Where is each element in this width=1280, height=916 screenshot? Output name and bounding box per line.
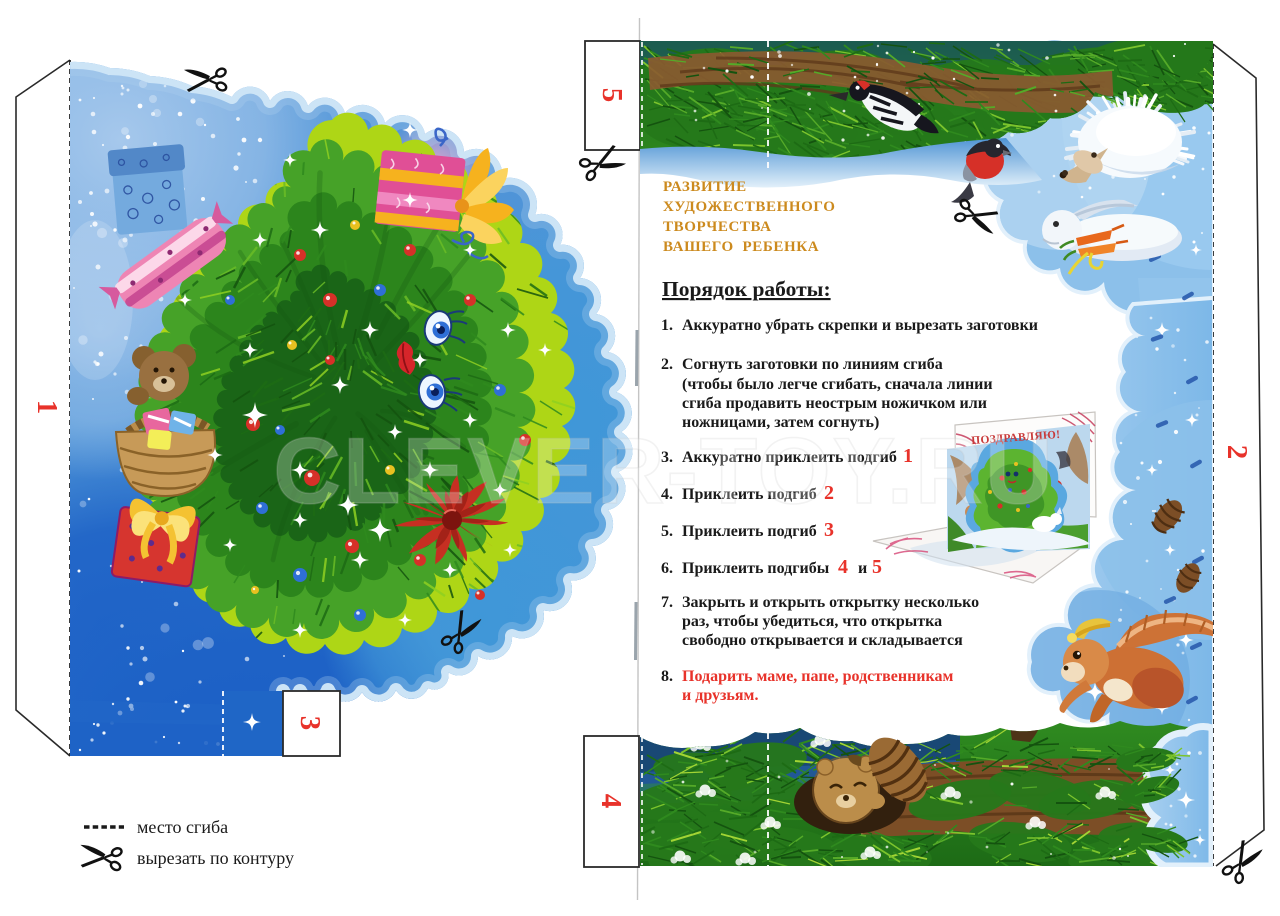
svg-text:1: 1 — [31, 400, 63, 415]
svg-text:место сгиба: место сгиба — [137, 817, 228, 837]
svg-text:ВАШЕГО РЕБЕНКА: ВАШЕГО РЕБЕНКА — [663, 239, 819, 255]
svg-text:РАЗВИТИЕ: РАЗВИТИЕ — [663, 179, 747, 195]
svg-text:Порядок работы:: Порядок работы: — [662, 277, 831, 301]
svg-text:CLEVER-TOY.RU: CLEVER-TOY.RU — [273, 418, 1055, 523]
svg-text:(чтобы было легче сгибать, сна: (чтобы было легче сгибать, сначала линии — [682, 376, 993, 393]
svg-text:2.Согнуть заготовки по линиям: 2.Согнуть заготовки по линиям сгиба — [661, 356, 943, 373]
svg-text:ХУДОЖЕСТВЕННОГО: ХУДОЖЕСТВЕННОГО — [663, 199, 835, 215]
svg-text:2: 2 — [1221, 445, 1253, 460]
svg-text:5: 5 — [596, 88, 628, 103]
svg-text:и друзьям.: и друзьям. — [682, 687, 758, 704]
svg-text:ТВОРЧЕСТВА: ТВОРЧЕСТВА — [663, 219, 772, 235]
svg-text:раз, чтобы убедиться, что откр: раз, чтобы убедиться, что открытка — [682, 613, 942, 630]
svg-text:свободно открывается и складыв: свободно открывается и складывается — [682, 632, 963, 649]
svg-text:3: 3 — [294, 716, 326, 731]
svg-text:4: 4 — [595, 794, 627, 809]
svg-text:сгиба продавить неострым ножич: сгиба продавить неострым ножичком или — [682, 395, 987, 412]
svg-text:7.Закрыть и открыть открытку н: 7.Закрыть и открыть открытку несколько — [661, 594, 979, 611]
svg-text:1.Аккуратно убрать скрепки и в: 1.Аккуратно убрать скрепки и вырезать за… — [661, 317, 1038, 334]
svg-text:вырезать по контуру: вырезать по контуру — [137, 848, 294, 868]
svg-text:8.Подарить маме, папе, родстве: 8.Подарить маме, папе, родственникам — [661, 668, 954, 685]
